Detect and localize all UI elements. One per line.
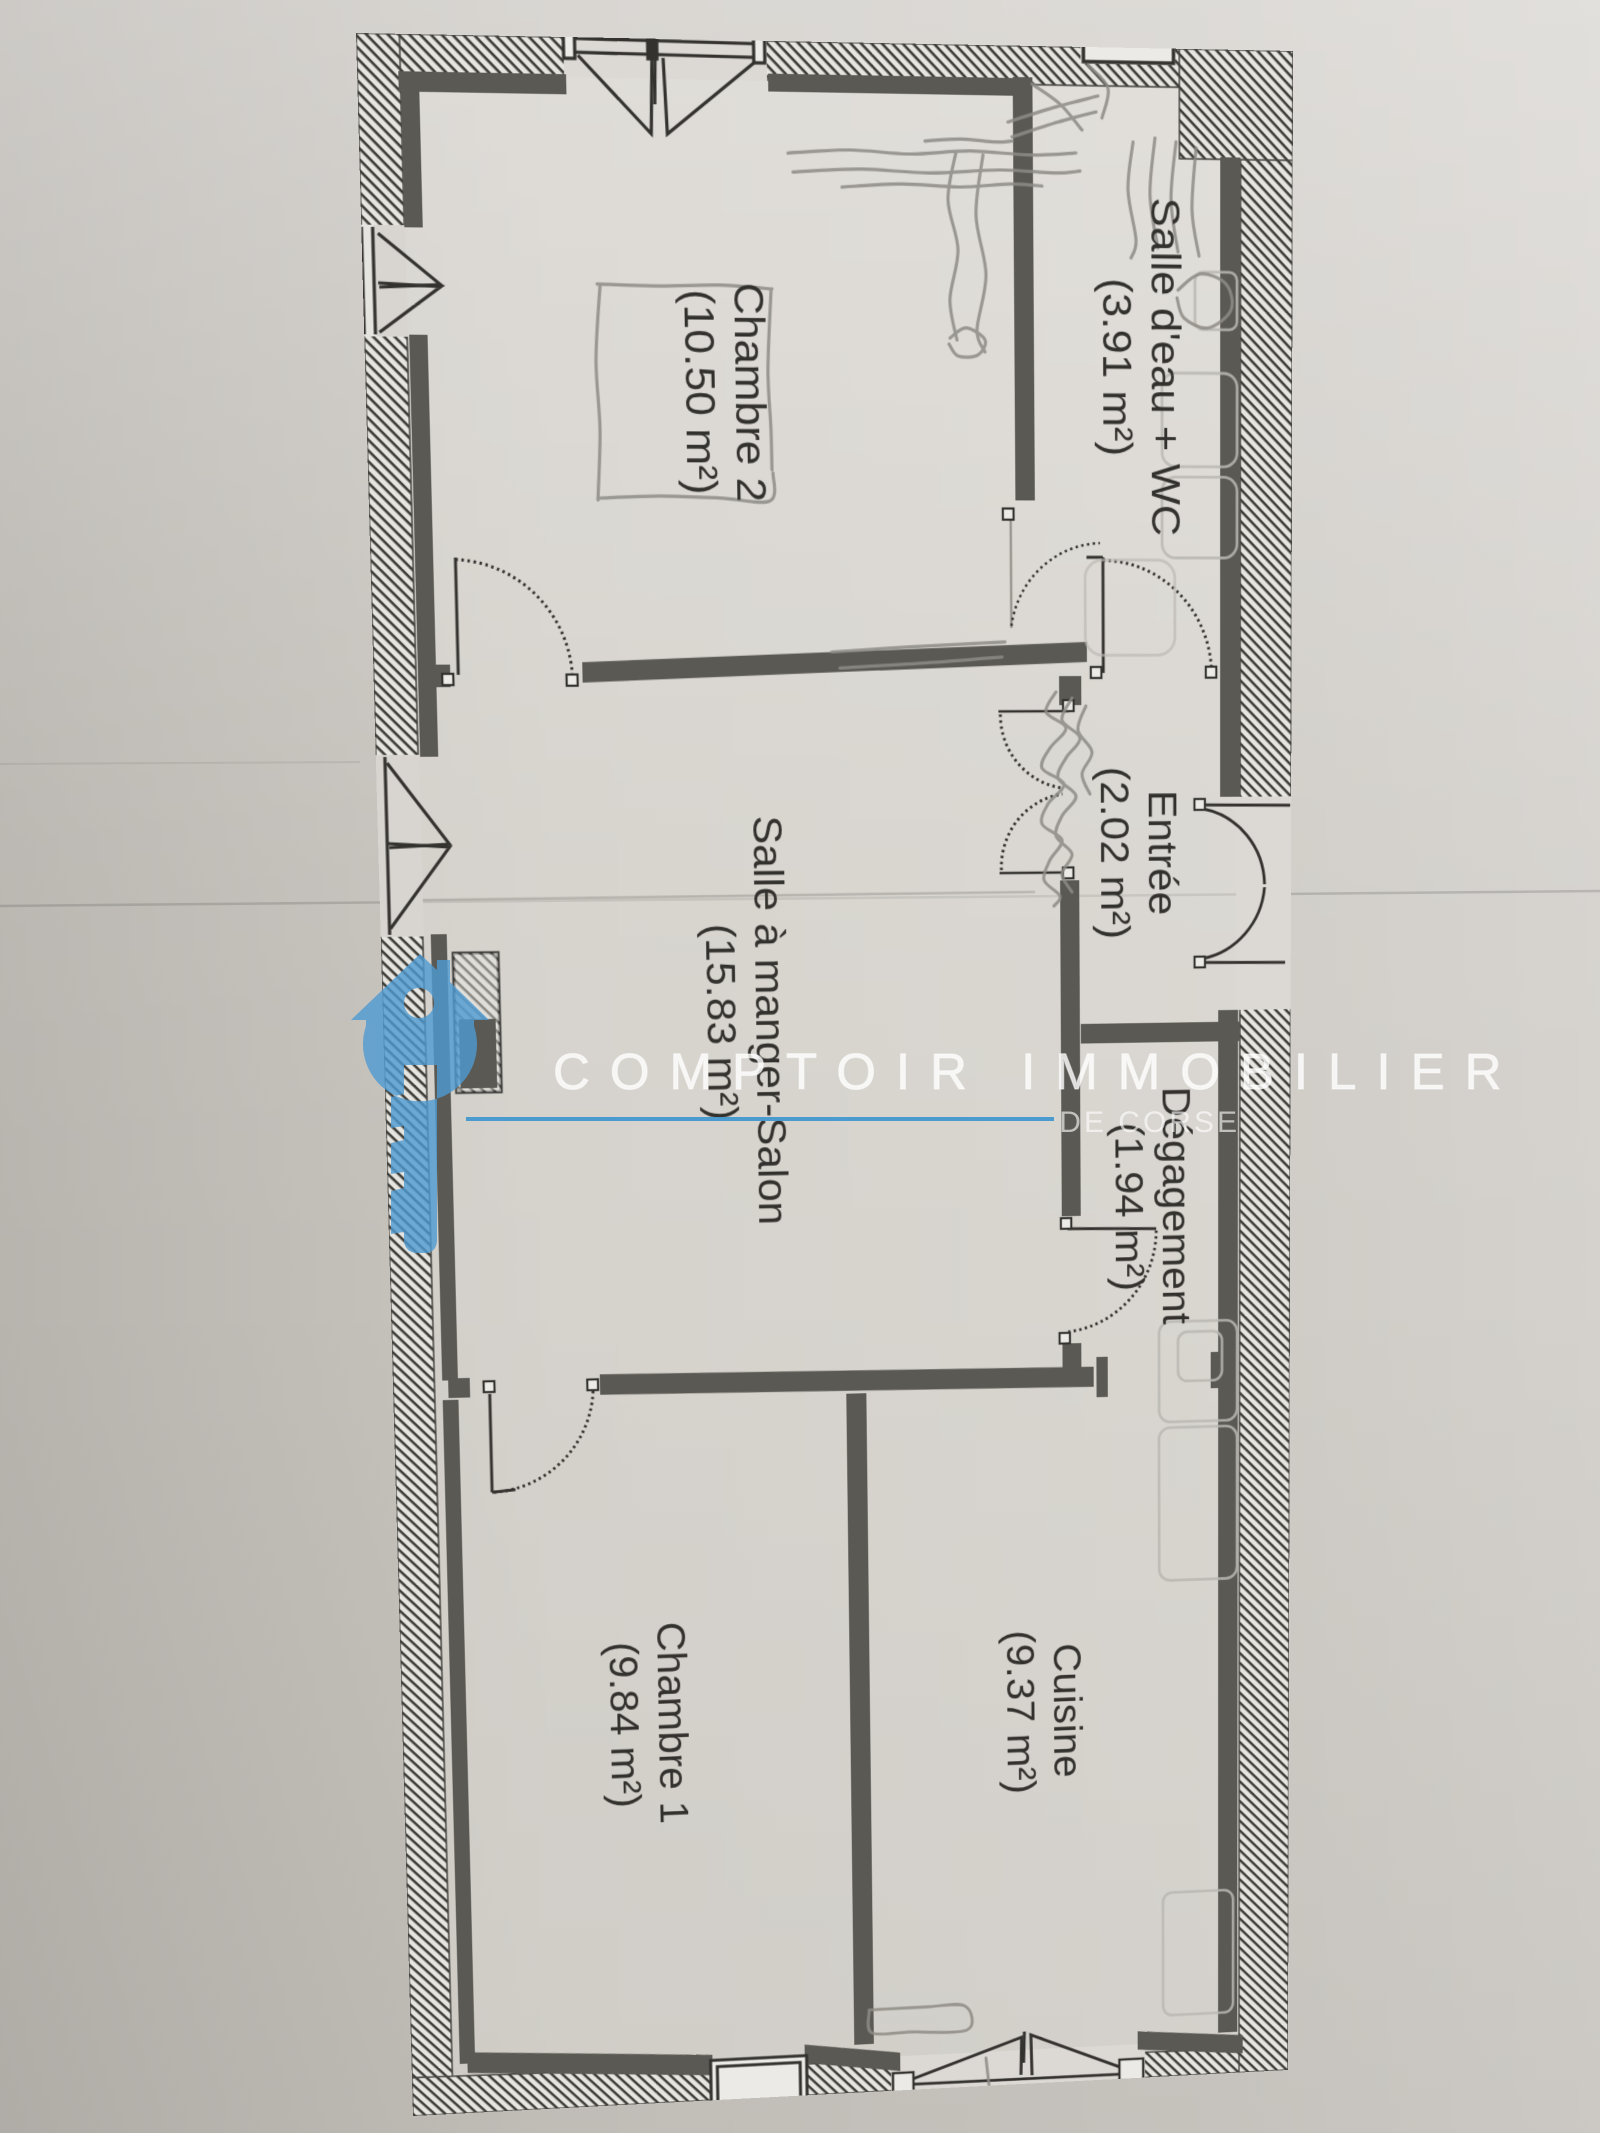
svg-text:DE CORSE: DE CORSE [1059,1106,1240,1139]
svg-text:COMPTOIR IMMOBILIER: COMPTOIR IMMOBILIER [553,1043,1521,1100]
